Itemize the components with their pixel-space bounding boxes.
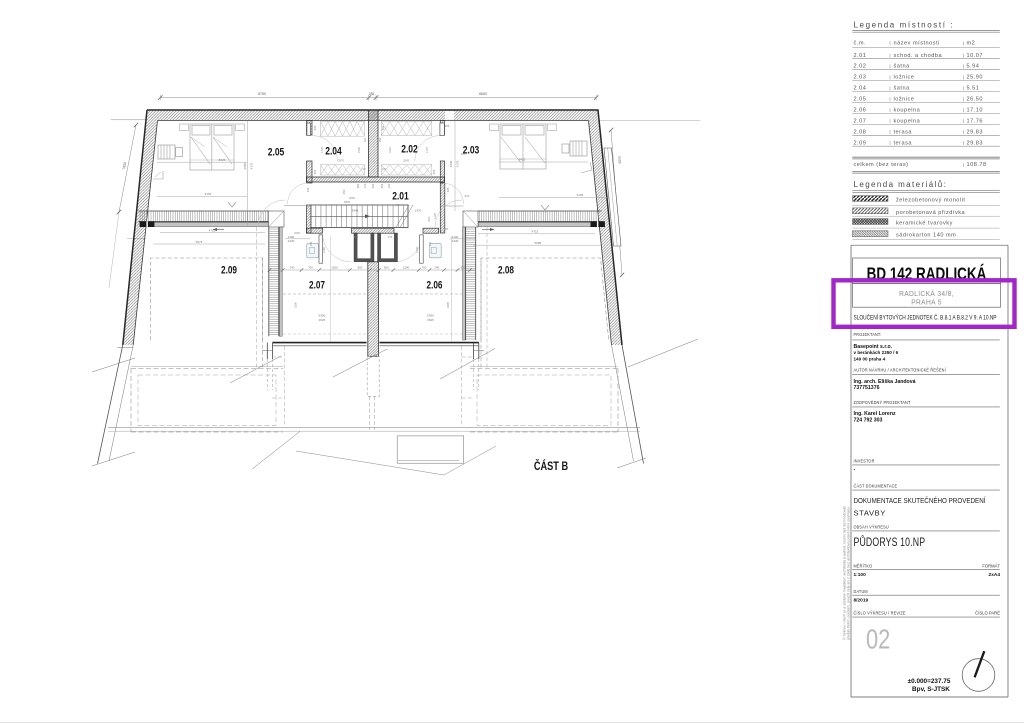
svg-text:2430: 2430 [452, 239, 459, 243]
svg-text:700: 700 [308, 266, 313, 270]
svg-text:160: 160 [444, 227, 449, 231]
svg-text:PRAHA 5: PRAHA 5 [911, 299, 942, 306]
svg-text:2.06: 2.06 [854, 108, 867, 114]
svg-text:985: 985 [445, 124, 450, 128]
svg-text:700: 700 [422, 266, 427, 270]
svg-text:600: 600 [313, 169, 317, 174]
svg-text:8750: 8750 [258, 92, 266, 96]
svg-text:3630: 3630 [449, 160, 453, 167]
svg-text:-: - [854, 466, 856, 472]
svg-text:5085: 5085 [535, 241, 542, 245]
svg-text:2.04: 2.04 [854, 86, 867, 92]
svg-text:29.83: 29.83 [967, 140, 984, 146]
svg-text:1135: 1135 [433, 213, 437, 219]
svg-text:2.02: 2.02 [401, 143, 418, 155]
svg-text:480: 480 [371, 183, 375, 188]
svg-text:MĚŘÍTKO: MĚŘÍTKO [854, 563, 873, 568]
svg-text:č.m.: č.m. [854, 41, 867, 47]
svg-text:960: 960 [427, 216, 431, 221]
svg-text:Basepoint s.r.o.: Basepoint s.r.o. [854, 344, 893, 350]
svg-text:5165: 5165 [205, 192, 212, 196]
svg-text:3650: 3650 [243, 162, 247, 169]
svg-text:předán třetím osobám, použít c: předán třetím osobám, použít celý ani z … [847, 507, 851, 640]
svg-text:520: 520 [307, 204, 312, 208]
svg-text:název místnosti: název místnosti [894, 41, 940, 47]
svg-text:koupelna: koupelna [894, 108, 921, 114]
svg-text:schod. a chodba: schod. a chodba [894, 53, 943, 59]
svg-text:ložnice: ložnice [894, 75, 915, 81]
svg-text:Legenda materiálů:: Legenda materiálů: [854, 180, 948, 189]
svg-text:1175: 1175 [425, 147, 429, 153]
svg-text:450: 450 [342, 189, 346, 194]
svg-text:150: 150 [363, 137, 367, 142]
svg-text:275: 275 [354, 235, 359, 239]
svg-text:8/2019: 8/2019 [854, 597, 869, 603]
svg-text:2.09: 2.09 [221, 264, 237, 276]
svg-text:3945: 3945 [352, 209, 359, 213]
svg-text:2.03: 2.03 [854, 75, 867, 81]
svg-text:PŮDORYS 10.NP: PŮDORYS 10.NP [854, 535, 926, 550]
svg-text:±0.000=237.75: ±0.000=237.75 [908, 678, 951, 685]
svg-text:2050: 2050 [294, 231, 300, 235]
svg-text:3370: 3370 [338, 159, 344, 163]
svg-text:m2: m2 [967, 41, 976, 47]
svg-text:150: 150 [387, 183, 391, 188]
svg-text:5595: 5595 [617, 156, 622, 164]
svg-text:2.07: 2.07 [854, 118, 867, 124]
svg-text:ČÁST DOKUMENTACE: ČÁST DOKUMENTACE [854, 483, 898, 488]
svg-text:2150: 2150 [357, 147, 361, 153]
svg-text:5965: 5965 [344, 200, 350, 204]
svg-text:sádrokarton 140 mm: sádrokarton 140 mm [896, 233, 956, 239]
svg-text:2430: 2430 [288, 239, 295, 243]
svg-text:2.04: 2.04 [325, 145, 342, 157]
svg-text:02: 02 [866, 624, 890, 655]
svg-text:ložnice: ložnice [894, 97, 915, 103]
svg-text:2.09: 2.09 [854, 140, 867, 146]
svg-text:RADLICKÁ 34/8,: RADLICKÁ 34/8, [899, 289, 954, 298]
svg-text:2.01: 2.01 [854, 53, 867, 59]
svg-text:170: 170 [363, 183, 367, 188]
svg-text:AUTOR NÁVRHU / ARCHITEKTONICKÉ: AUTOR NÁVRHU / ARCHITEKTONICKÉ ŘEŠENÍ [854, 368, 947, 373]
svg-text:400: 400 [432, 169, 436, 174]
svg-text:8425: 8425 [519, 158, 526, 162]
svg-text:STAVBY: STAVBY [854, 509, 886, 518]
svg-text:SLOUČENÍ BYTOVÝCH JEDNOTEK Č.: SLOUČENÍ BYTOVÝCH JEDNOTEK Č. B.8.1 A B.… [854, 313, 997, 322]
svg-text:4715: 4715 [532, 230, 539, 234]
svg-text:ZODPOVĚDNÝ PROJEKTANT: ZODPOVĚDNÝ PROJEKTANT [854, 400, 911, 405]
svg-text:108.78: 108.78 [967, 162, 987, 168]
svg-text:ČÁST B: ČÁST B [534, 459, 569, 473]
svg-text:600: 600 [381, 125, 385, 130]
svg-text:šatna: šatna [894, 86, 911, 92]
svg-text:2.08: 2.08 [498, 264, 515, 276]
svg-text:1100: 1100 [415, 247, 419, 253]
svg-text:724 792 303: 724 792 303 [854, 418, 883, 424]
svg-text:600: 600 [384, 266, 389, 270]
svg-text:150: 150 [378, 137, 382, 142]
svg-text:1100: 1100 [452, 235, 459, 239]
svg-text:50: 50 [363, 167, 366, 171]
svg-text:INVESTOR: INVESTOR [854, 458, 875, 463]
svg-text:porobetonavá přizdívka: porobetonavá přizdívka [896, 210, 966, 216]
svg-text:ČÍSLO PARÉ: ČÍSLO PARÉ [975, 611, 1000, 616]
svg-text:880: 880 [356, 183, 360, 188]
svg-text:Ing. arch. Eliška Jandová: Ing. arch. Eliška Jandová [854, 379, 916, 385]
svg-text:2.03: 2.03 [463, 144, 480, 156]
svg-text:3285: 3285 [446, 301, 450, 308]
svg-text:800: 800 [358, 266, 363, 270]
svg-text:737751376: 737751376 [854, 385, 880, 391]
svg-text:2.01: 2.01 [392, 190, 409, 202]
svg-text:5165: 5165 [577, 193, 584, 197]
svg-text:805: 805 [380, 183, 384, 188]
svg-text:3285: 3285 [294, 301, 298, 308]
svg-text:5.94: 5.94 [967, 64, 980, 70]
svg-text:275: 275 [388, 235, 393, 239]
svg-text:26.50: 26.50 [967, 97, 984, 103]
svg-text:2.05: 2.05 [854, 97, 867, 103]
svg-text:3625: 3625 [319, 318, 326, 322]
svg-text:FORMÁT: FORMÁT [982, 563, 1000, 568]
svg-text:29.83: 29.83 [967, 129, 984, 135]
svg-text:Ing. Karel Lorenz: Ing. Karel Lorenz [854, 411, 896, 417]
svg-text:25.90: 25.90 [967, 75, 984, 81]
svg-text:ČÍSLO VÝKRESU / REVIZE: ČÍSLO VÝKRESU / REVIZE [854, 610, 906, 615]
svg-text:740: 740 [434, 266, 439, 270]
svg-text:1200: 1200 [331, 266, 338, 270]
svg-text:v beránkách 2350 / 6: v beránkách 2350 / 6 [854, 350, 899, 355]
svg-text:10.07: 10.07 [967, 53, 984, 59]
svg-text:8680: 8680 [479, 92, 487, 96]
svg-text:485: 485 [446, 187, 450, 192]
svg-text:17.10: 17.10 [967, 108, 984, 114]
svg-text:8625: 8625 [219, 158, 226, 162]
svg-text:100: 100 [382, 167, 387, 171]
svg-text:1370: 1370 [415, 209, 422, 213]
svg-text:5.51: 5.51 [967, 86, 980, 92]
svg-text:koupelna: koupelna [894, 118, 921, 124]
svg-text:2.05: 2.05 [268, 146, 285, 158]
svg-text:2110: 2110 [388, 147, 392, 153]
svg-text:455: 455 [306, 187, 310, 192]
svg-text:520: 520 [461, 266, 466, 270]
svg-text:PROJEKTANT:: PROJEKTANT: [854, 332, 882, 337]
svg-text:1725: 1725 [320, 147, 324, 153]
svg-text:2.07: 2.07 [309, 279, 325, 291]
svg-text:9450: 9450 [349, 196, 355, 200]
svg-text:šatna: šatna [894, 64, 911, 70]
svg-text:500: 500 [313, 125, 317, 130]
svg-text:4175: 4175 [249, 162, 253, 169]
svg-text:4175: 4175 [456, 160, 460, 167]
svg-text:2.02: 2.02 [854, 64, 867, 70]
svg-text:5675: 5675 [196, 240, 203, 244]
svg-text:keramické tvarovky: keramické tvarovky [896, 221, 953, 227]
svg-text:Legenda místností :: Legenda místností : [854, 21, 955, 30]
svg-text:3625: 3625 [427, 318, 434, 322]
svg-text:150: 150 [309, 241, 313, 246]
svg-text:1100: 1100 [288, 235, 295, 239]
svg-text:terasa: terasa [894, 140, 913, 146]
svg-text:OBSAH VÝKRESU: OBSAH VÝKRESU [854, 524, 889, 529]
svg-text:90: 90 [397, 203, 400, 207]
svg-text:Bpv, S-JTSK: Bpv, S-JTSK [912, 686, 950, 693]
svg-text:1:100: 1:100 [854, 572, 867, 578]
svg-text:2.06: 2.06 [427, 279, 443, 291]
svg-text:celkem (bez teras): celkem (bez teras) [854, 162, 909, 168]
svg-text:1290: 1290 [403, 266, 410, 270]
svg-text:4715: 4715 [209, 228, 216, 232]
svg-text:17.76: 17.76 [967, 118, 984, 124]
svg-text:1100: 1100 [322, 247, 326, 253]
svg-text:železobetonový monolit: železobetonový monolit [896, 198, 965, 204]
svg-text:2.08: 2.08 [854, 129, 867, 135]
svg-text:150: 150 [428, 241, 432, 246]
svg-text:terasa: terasa [894, 129, 913, 135]
svg-text:740: 740 [290, 266, 295, 270]
svg-text:2545: 2545 [403, 159, 409, 163]
svg-text:520: 520 [465, 194, 470, 198]
svg-text:DATUM: DATUM [854, 589, 869, 594]
svg-text:149 00 praha 4: 149 00 praha 4 [854, 356, 886, 361]
svg-text:2xA4: 2xA4 [989, 572, 1001, 578]
svg-text:DOKUMENTACE SKUTEČNÉHO PROVEDE: DOKUMENTACE SKUTEČNÉHO PROVEDENÍ [854, 496, 987, 505]
svg-text:285: 285 [369, 92, 375, 96]
